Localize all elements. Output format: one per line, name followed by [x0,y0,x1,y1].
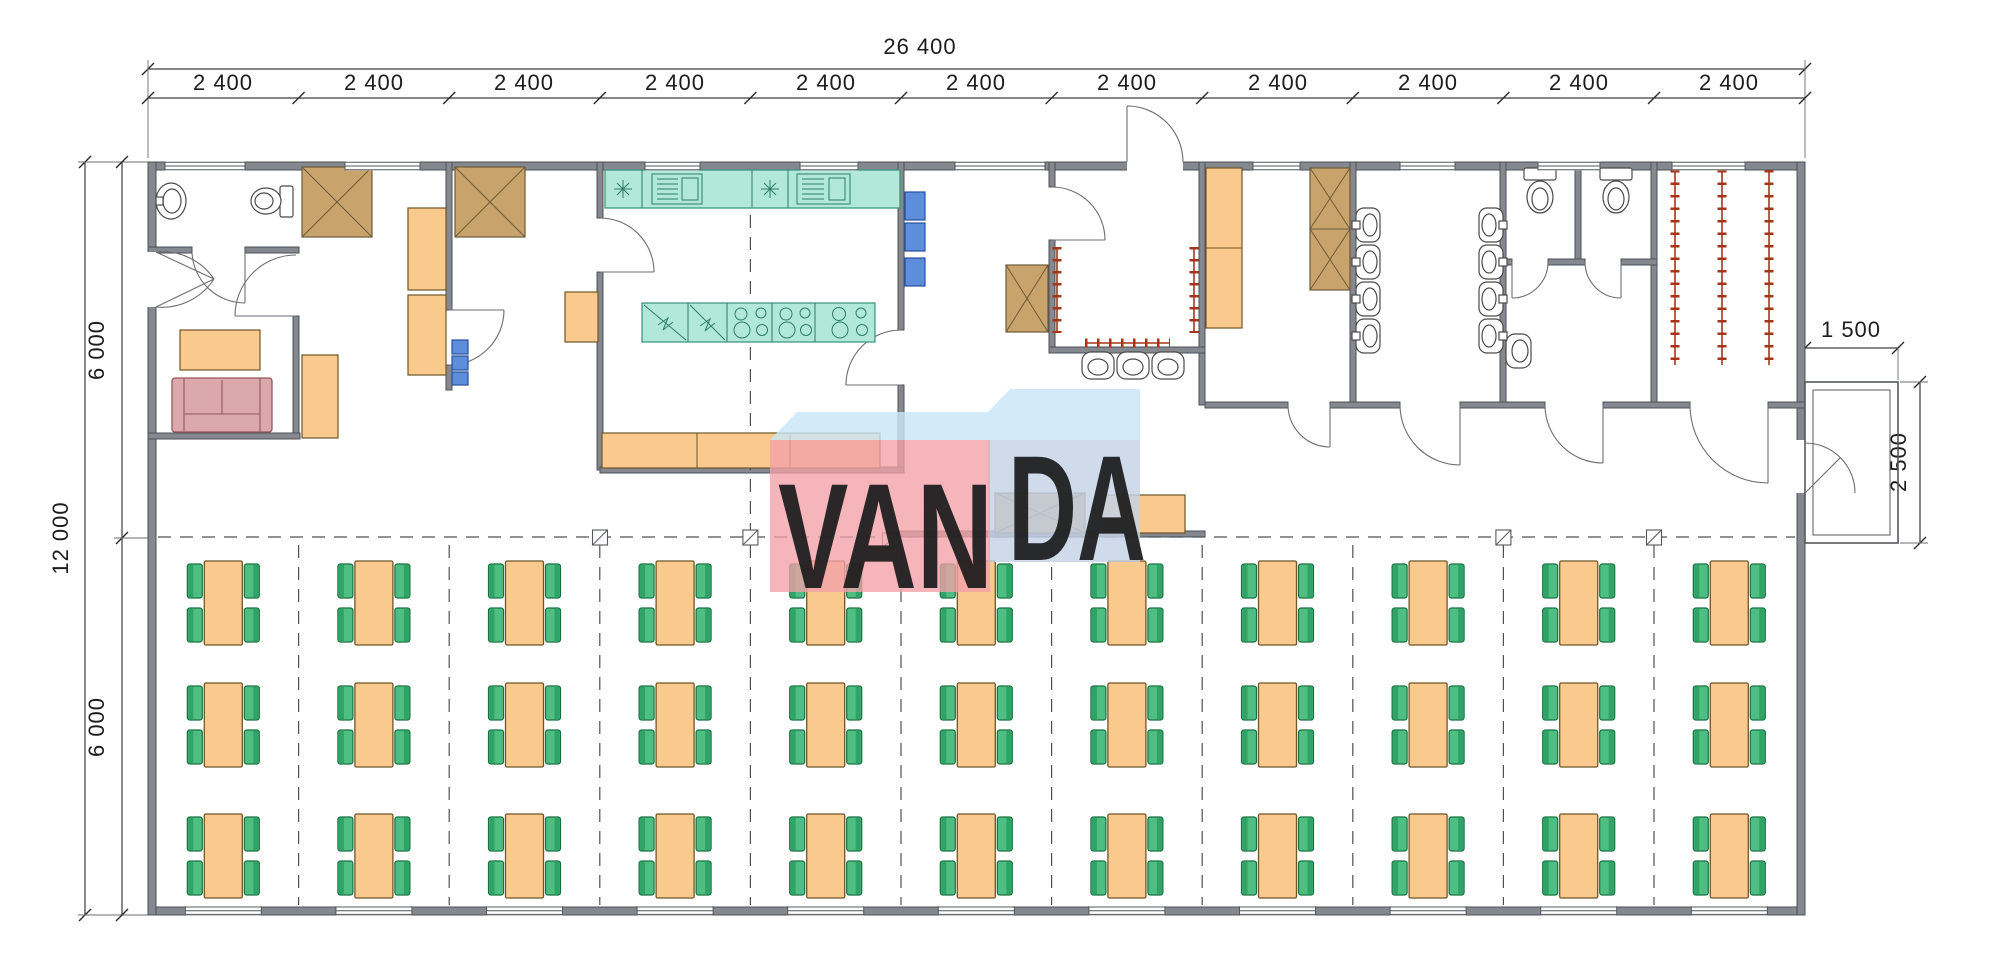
dining-table [807,814,845,898]
dining-table-set [489,683,561,767]
dim-height-half-label: 6 000 [84,697,109,757]
dining-table-set [1693,561,1765,645]
chair-back [1609,818,1614,850]
chair-back [490,609,495,641]
dim-bay-label: 2 400 [1097,70,1157,95]
dining-table [1409,683,1447,767]
chair-back [188,731,193,763]
dining-table-set [1392,814,1464,898]
kitchen-island [642,303,875,342]
chair-back [188,818,193,850]
chair-back [1092,609,1097,641]
chair-back [339,818,344,850]
chair-back [490,731,495,763]
sink-icon [1352,208,1380,242]
chair-back [1006,687,1011,719]
dining-table [656,814,694,898]
chair-back [253,565,258,597]
chair-back [941,862,946,894]
chair-back [1759,818,1764,850]
dining-table [204,814,242,898]
dining-table [204,683,242,767]
chair-back [1609,731,1614,763]
chair-back [490,818,495,850]
sink-icon [1082,352,1184,379]
sink-icon [1479,319,1507,353]
chair-back [1694,565,1699,597]
dining-table [1560,561,1598,645]
chair-back [705,818,710,850]
sink-icon [1479,282,1507,316]
dim-bay-label: 2 400 [796,70,856,95]
dining-table [1108,683,1146,767]
chair-back [1544,731,1549,763]
dining-table-set [338,814,410,898]
toilet-icon [1600,168,1632,213]
chair-back [339,731,344,763]
chair-back [1694,862,1699,894]
column-marker [743,530,758,545]
kitchen-counter [605,170,900,208]
dim-bay-label: 2 400 [1248,70,1308,95]
wardrobe-icon [1310,168,1350,290]
dining-table [1409,814,1447,898]
wall-east [1797,162,1805,915]
dim-porch-width-label: 1 500 [1821,317,1881,342]
column-marker [1647,530,1662,545]
dining-table-set [187,561,259,645]
chair-back [1458,609,1463,641]
chair-back [339,862,344,894]
dining-table [1710,814,1748,898]
watermark-text-van: VAN [778,452,993,620]
sink-icon [156,183,186,219]
shelf-icon [452,372,468,385]
dining-table [355,814,393,898]
dining-table-set [1693,683,1765,767]
table-icon [180,330,260,370]
cabinet-icon [302,355,338,438]
chair-back [1308,862,1313,894]
watermark-logo: VAN DA [770,389,1146,620]
chair-back [791,687,796,719]
dining-table [957,683,995,767]
sink-icon [1352,282,1380,316]
chair-back [1092,862,1097,894]
chair-back [404,609,409,641]
cabinet-icon [408,295,446,375]
sink-icon [1479,208,1507,242]
column-marker [1496,530,1511,545]
chair-back [555,565,560,597]
chair-back [1308,687,1313,719]
chair-back [1393,565,1398,597]
dining-table [807,683,845,767]
chair-back [1157,862,1162,894]
chair-back [1458,818,1463,850]
chair-back [1759,565,1764,597]
chair-back [1694,609,1699,641]
sink-icon [1479,245,1507,279]
chair-back [555,818,560,850]
wardrobe-icon [455,167,525,237]
dining-table-set [187,814,259,898]
chair-back [1458,862,1463,894]
chair-back [640,687,645,719]
chair-back [1308,818,1313,850]
chair-back [1092,731,1097,763]
chair-back [253,818,258,850]
dining-table-set [940,814,1012,898]
chair-back [490,862,495,894]
chair-back [1157,565,1162,597]
wardrobe-icon [302,167,372,237]
watermark-text-da: DA [1008,424,1146,592]
dim-total-width-label: 26 400 [883,34,956,59]
chair-back [705,609,710,641]
dining-table-set [1543,683,1615,767]
dining-table [1710,683,1748,767]
chair-back [856,818,861,850]
coat-rail-icon [1057,247,1194,343]
chair-back [404,731,409,763]
dim-bay-label: 2 400 [494,70,554,95]
dining-table-set [489,561,561,645]
dining-table [355,561,393,645]
chair-back [941,818,946,850]
dim-bay-label: 2 400 [946,70,1006,95]
chair-back [1609,862,1614,894]
shelf-icon [905,258,925,286]
toilet-icon [1524,168,1556,213]
chair-back [555,687,560,719]
chair-back [555,862,560,894]
dining-table-set [338,561,410,645]
chair-back [1006,609,1011,641]
chair-back [1609,565,1614,597]
chair-back [404,565,409,597]
chair-back [1308,565,1313,597]
chair-back [791,818,796,850]
shelf-icon [452,356,468,370]
dining-table-set [1242,683,1314,767]
dining-table-set [1242,561,1314,645]
toilet-icon [251,186,293,217]
wardrobe-icon [1006,265,1048,332]
dining-table-set [1091,683,1163,767]
chair-back [555,609,560,641]
chair-back [188,862,193,894]
chair-back [339,609,344,641]
chair-back [1006,818,1011,850]
dining-table-set [1543,561,1615,645]
chair-back [1544,818,1549,850]
dining-table [1409,561,1447,645]
dining-table-set [1392,683,1464,767]
dining-table [204,561,242,645]
chair-back [555,731,560,763]
chair-back [1006,731,1011,763]
dining-table-set [639,561,711,645]
chair-back [1243,862,1248,894]
chair-back [339,687,344,719]
shelf-icon [905,223,925,251]
chair-back [1544,687,1549,719]
cabinet-icon [408,208,446,290]
chair-back [253,687,258,719]
dining-table [1259,814,1297,898]
shelf-icon [452,340,468,354]
chair-back [404,818,409,850]
chair-back [188,687,193,719]
chair-back [1006,862,1011,894]
chair-back [404,687,409,719]
dim-bay-label: 2 400 [1549,70,1609,95]
chair-back [339,565,344,597]
dim-height-half-label: 6 000 [84,320,109,380]
dining-table-set [1091,814,1163,898]
dining-table-set [639,683,711,767]
sink-icon [1506,334,1531,368]
floor-plan-page: 26 400 2 400 2 400 2 400 2 400 2 400 2 4… [0,0,2000,975]
chair-back [490,565,495,597]
dim-bay-label: 2 400 [645,70,705,95]
dining-table-set [1693,814,1765,898]
chair-back [1393,687,1398,719]
chair-back [1609,609,1614,641]
dining-table [1560,814,1598,898]
chair-back [856,731,861,763]
chair-back [253,731,258,763]
chair-back [188,609,193,641]
chair-back [404,862,409,894]
chair-back [791,862,796,894]
cabinet-icon [565,292,598,342]
chair-back [856,687,861,719]
chair-back [1157,731,1162,763]
chair-back [1544,609,1549,641]
chair-back [1308,731,1313,763]
chair-back [1092,687,1097,719]
dining-table-set [639,814,711,898]
dining-table-set [1392,561,1464,645]
service-door-opening [1127,161,1183,171]
chair-back [1157,609,1162,641]
chair-back [705,687,710,719]
dim-total-height-label: 12 000 [48,501,73,574]
chair-back [791,731,796,763]
chair-back [1759,687,1764,719]
chair-back [1759,862,1764,894]
dining-table [656,683,694,767]
chair-back [1393,609,1398,641]
chair-back [640,609,645,641]
dining-table [506,683,544,767]
dining-table-set [489,814,561,898]
dining-table [1259,683,1297,767]
dim-bay-label: 2 400 [344,70,404,95]
chair-back [1759,731,1764,763]
chair-back [1694,687,1699,719]
chair-back [1694,818,1699,850]
chair-back [253,862,258,894]
shelf-icon [905,192,925,220]
dining-table [1710,561,1748,645]
chair-back [1243,609,1248,641]
chair-back [1458,731,1463,763]
chair-back [1092,818,1097,850]
chair-back [253,609,258,641]
dining-table-set [1242,814,1314,898]
chair-back [188,565,193,597]
dining-table [355,683,393,767]
coat-rail-icon [1675,170,1769,365]
chair-back [1157,818,1162,850]
chair-back [1458,687,1463,719]
chair-back [1243,687,1248,719]
chair-back [705,731,710,763]
dining-table-set [187,683,259,767]
chair-back [1544,862,1549,894]
chair-back [1393,731,1398,763]
chair-back [941,731,946,763]
chair-back [640,818,645,850]
dining-table [1560,683,1598,767]
chair-back [1243,731,1248,763]
chair-back [490,687,495,719]
chair-back [1759,609,1764,641]
chair-back [705,565,710,597]
dining-table [506,814,544,898]
dining-table-set [940,683,1012,767]
dining-table-set [1543,814,1615,898]
chair-back [1393,818,1398,850]
chair-back [705,862,710,894]
chair-back [1243,818,1248,850]
sink-icon [1352,319,1380,353]
dining-table [506,561,544,645]
chair-back [941,687,946,719]
sofa-icon [172,378,272,432]
dining-table-set [790,683,862,767]
dining-table [1259,561,1297,645]
chair-back [1157,687,1162,719]
dining-table [957,814,995,898]
dining-table [1108,814,1146,898]
chair-back [1544,565,1549,597]
dim-bay-label: 2 400 [1699,70,1759,95]
dim-bay-label: 2 400 [1398,70,1458,95]
chair-back [1458,565,1463,597]
column-marker [593,530,608,545]
porch [1805,382,1898,543]
chair-back [640,731,645,763]
chair-back [640,862,645,894]
chair-back [1308,609,1313,641]
entrance-opening [147,252,157,307]
chair-back [1393,862,1398,894]
dim-bay-label: 2 400 [193,70,253,95]
dining-table [656,561,694,645]
chair-back [1694,731,1699,763]
floor-plan-canvas: 26 400 2 400 2 400 2 400 2 400 2 400 2 4… [0,0,2000,975]
dining-table-set [790,814,862,898]
washroom-basins [1352,208,1507,353]
chair-back [640,565,645,597]
chair-back [856,862,861,894]
dining-table-set [338,683,410,767]
sink-icon [1352,245,1380,279]
chair-back [1243,565,1248,597]
chair-back [1609,687,1614,719]
